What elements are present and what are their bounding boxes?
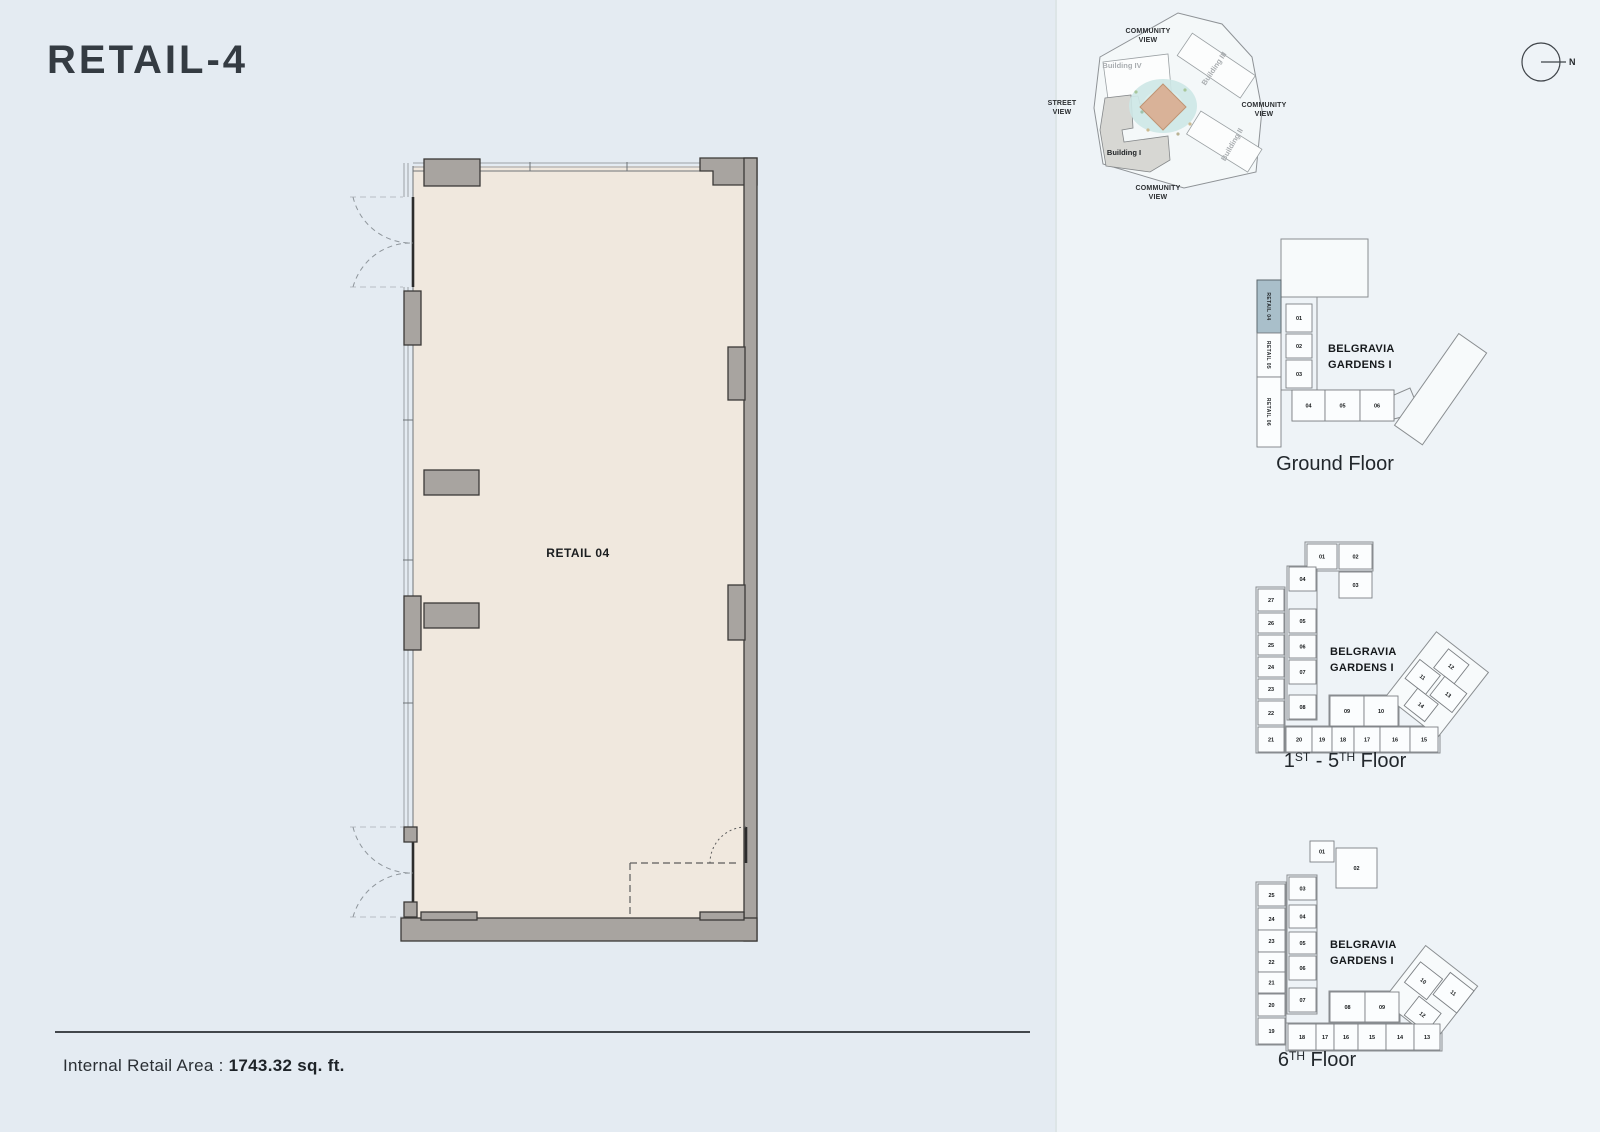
unit-label-04: 04 <box>1299 915 1306 921</box>
entrance-door-top <box>350 197 413 287</box>
project-name-line1: BELGRAVIA <box>1328 343 1395 355</box>
unit-label-25: 25 <box>1268 893 1274 899</box>
unit-label-15: 15 <box>1421 738 1427 744</box>
unit-label-03: 03 <box>1296 372 1302 378</box>
retail-cell-label: RETAIL 06 <box>1265 398 1271 426</box>
project-name-line2: GARDENS I <box>1330 955 1394 967</box>
unit-label-06: 06 <box>1299 966 1305 972</box>
unit-label-21: 21 <box>1268 738 1274 744</box>
wall-pilaster-right-2 <box>728 585 745 640</box>
ground-tower-outline <box>1281 239 1368 297</box>
unit-label-02: 02 <box>1352 555 1358 561</box>
footer-divider <box>55 1031 1030 1033</box>
unit-label-05: 05 <box>1299 619 1305 625</box>
area-value: 1743.32 sq. ft. <box>229 1056 345 1075</box>
view-label-bottom: COMMUNITY VIEW <box>1118 184 1198 203</box>
retail-cell-label: RETAIL 04 <box>1265 292 1271 320</box>
unit-label-04: 04 <box>1299 577 1306 583</box>
unit-label-26: 26 <box>1268 621 1274 627</box>
unit-label-01: 01 <box>1319 850 1325 856</box>
unit-label-06: 06 <box>1374 404 1380 410</box>
unit-label-23: 23 <box>1268 939 1274 945</box>
unit-label-08: 08 <box>1299 705 1305 711</box>
caption-floor-1-5: 1ST - 5TH Floor <box>1250 750 1440 773</box>
unit-label-06: 06 <box>1299 645 1305 651</box>
unit-label-16: 16 <box>1343 1035 1349 1041</box>
page-title: RETAIL-4 <box>47 38 248 83</box>
unit-label-09: 09 <box>1344 709 1350 715</box>
key-plan-floor-1-5: 12111314 0102030405060708091027262524232… <box>1256 542 1488 753</box>
wall-pilaster-right-1 <box>728 347 745 400</box>
unit-label-25: 25 <box>1268 643 1274 649</box>
unit-label-01: 01 <box>1319 555 1325 561</box>
unit-label-07: 07 <box>1299 998 1305 1004</box>
wall-pier-left-1 <box>404 291 421 345</box>
unit-label-22: 22 <box>1268 711 1274 717</box>
building-iv-label: Building IV <box>1098 61 1146 70</box>
unit-label-08: 08 <box>1344 1005 1350 1011</box>
wall-bottom-jog-right <box>700 912 744 920</box>
unit-label-24: 24 <box>1268 917 1275 923</box>
unit-label-19: 19 <box>1319 738 1325 744</box>
unit-label-01: 01 <box>1296 316 1302 322</box>
wall-bottom-jog-left <box>421 912 477 920</box>
project-name-line1: BELGRAVIA <box>1330 646 1397 658</box>
interior-fin-2 <box>424 603 479 628</box>
wall-bottom <box>401 918 757 941</box>
project-name-line2: GARDENS I <box>1328 359 1392 371</box>
unit-label-24: 24 <box>1268 665 1275 671</box>
unit-label-18: 18 <box>1340 738 1346 744</box>
view-label-top: COMMUNITY VIEW <box>1108 27 1188 46</box>
area-note: Internal Retail Area : 1743.32 sq. ft. <box>63 1056 345 1076</box>
page-background: RETAIL 04 N RE <box>0 0 1600 1132</box>
unit-label-04: 04 <box>1305 404 1312 410</box>
main-floor-plan: RETAIL 04 <box>350 158 757 941</box>
wall-pier-left-2 <box>404 596 421 650</box>
unit-label-21: 21 <box>1268 981 1274 987</box>
retail-unit-label: RETAIL 04 <box>546 546 609 560</box>
unit-label-20: 20 <box>1268 1003 1274 1009</box>
unit-label-07: 07 <box>1299 670 1305 676</box>
unit-label-19: 19 <box>1268 1029 1274 1035</box>
caption-floor-6: 6TH Floor <box>1227 1049 1407 1072</box>
unit-label-17: 17 <box>1322 1035 1328 1041</box>
entrance-door-bottom <box>350 827 417 917</box>
area-label: Internal Retail Area : <box>63 1056 224 1075</box>
view-label-street: STREET VIEW <box>1030 99 1094 118</box>
caption-ground-floor: Ground Floor <box>1240 453 1430 476</box>
unit-label-15: 15 <box>1369 1035 1375 1041</box>
unit-label-13: 13 <box>1424 1035 1430 1041</box>
unit-label-27: 27 <box>1268 598 1274 604</box>
unit-label-05: 05 <box>1299 941 1305 947</box>
interior-fin-1 <box>424 470 479 495</box>
north-letter: N <box>1569 57 1576 67</box>
wall-pier-top-left <box>424 159 480 186</box>
f15-wing-outline <box>1386 632 1488 737</box>
retail-cell-label: RETAIL 05 <box>1265 341 1271 369</box>
unit-label-02: 02 <box>1353 866 1359 872</box>
unit-label-03: 03 <box>1352 583 1358 589</box>
wall-right <box>744 158 757 941</box>
drawing-layer: RETAIL 04 N RE <box>0 0 1600 1132</box>
unit-label-10: 10 <box>1378 709 1384 715</box>
building-i-label: Building I <box>1100 148 1148 157</box>
unit-label-02: 02 <box>1296 344 1302 350</box>
unit-label-16: 16 <box>1392 738 1398 744</box>
key-plan-ground: RETAIL 04RETAIL 05RETAIL 06 010203040506… <box>1257 239 1487 447</box>
unit-label-17: 17 <box>1364 738 1370 744</box>
key-plan-floor-6: 101112 010203040506070809252423222120191… <box>1256 841 1478 1051</box>
unit-label-23: 23 <box>1268 687 1274 693</box>
unit-label-05: 05 <box>1339 404 1345 410</box>
north-compass: N <box>1522 43 1576 81</box>
project-name-line1: BELGRAVIA <box>1330 939 1397 951</box>
unit-label-14: 14 <box>1397 1035 1404 1041</box>
unit-label-18: 18 <box>1299 1035 1305 1041</box>
unit-label-09: 09 <box>1379 1005 1385 1011</box>
project-name-line2: GARDENS I <box>1330 662 1394 674</box>
unit-label-20: 20 <box>1296 738 1302 744</box>
unit-label-22: 22 <box>1268 960 1274 966</box>
unit-label-03: 03 <box>1299 887 1305 893</box>
retail-interior <box>413 166 744 920</box>
